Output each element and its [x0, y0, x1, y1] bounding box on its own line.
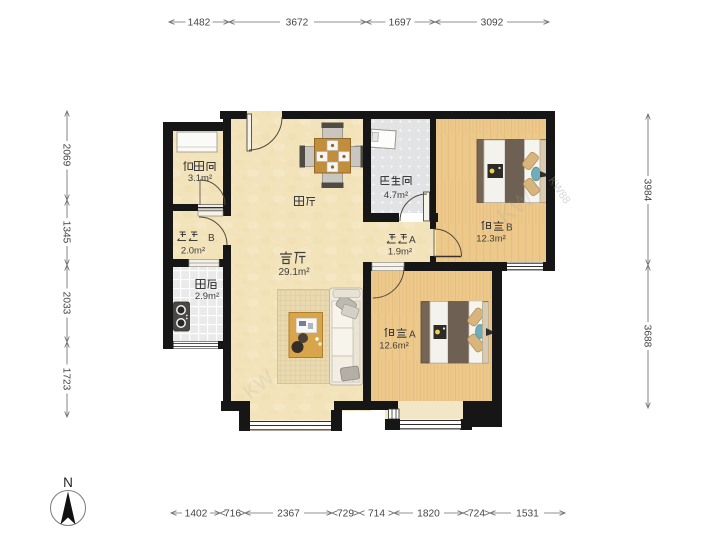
svg-text:4.7m²: 4.7m²	[384, 190, 408, 201]
svg-text:1402: 1402	[185, 509, 208, 520]
svg-text:1531: 1531	[516, 509, 539, 520]
svg-text:A: A	[409, 330, 416, 341]
svg-text:3092: 3092	[481, 18, 504, 29]
svg-text:2367: 2367	[277, 509, 300, 520]
svg-text:724: 724	[468, 509, 485, 520]
svg-text:1697: 1697	[389, 18, 412, 29]
svg-text:12.6m²: 12.6m²	[379, 341, 409, 352]
svg-text:N: N	[63, 475, 73, 490]
svg-text:1482: 1482	[188, 18, 211, 29]
svg-text:716: 716	[224, 509, 241, 520]
svg-text:1.9m²: 1.9m²	[388, 247, 412, 258]
svg-text:3688: 3688	[641, 325, 652, 348]
svg-text:29.1m²: 29.1m²	[278, 267, 310, 278]
svg-text:2.9m²: 2.9m²	[195, 291, 219, 302]
svg-text:1820: 1820	[417, 509, 440, 520]
svg-text:714: 714	[368, 509, 385, 520]
svg-text:3.1m²: 3.1m²	[188, 173, 212, 184]
svg-text:3672: 3672	[286, 18, 309, 29]
svg-text:A: A	[409, 235, 416, 246]
svg-text:2033: 2033	[60, 292, 71, 315]
svg-text:12.3m²: 12.3m²	[476, 234, 506, 245]
svg-text:3984: 3984	[641, 179, 652, 202]
svg-text:2069: 2069	[60, 144, 71, 167]
svg-text:729: 729	[337, 509, 354, 520]
svg-text:1345: 1345	[60, 221, 71, 244]
svg-text:1723: 1723	[60, 368, 71, 391]
svg-text:B: B	[208, 233, 215, 244]
svg-text:2.0m²: 2.0m²	[181, 246, 205, 257]
